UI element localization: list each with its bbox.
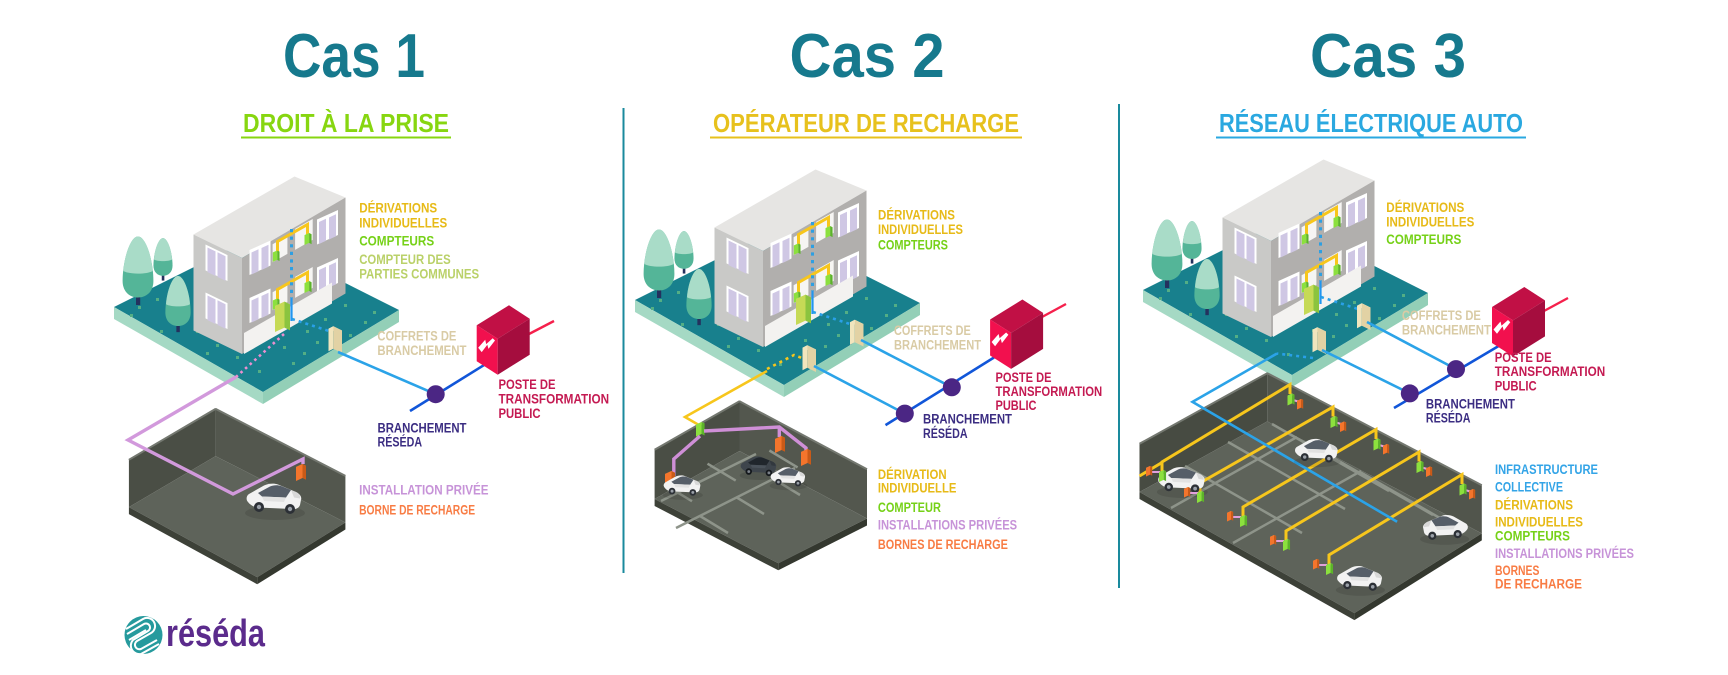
svg-text:BRANCHEMENT: BRANCHEMENT <box>1402 322 1492 337</box>
svg-text:TRANSFORMATION: TRANSFORMATION <box>499 391 610 406</box>
svg-text:BRANCHEMENT: BRANCHEMENT <box>377 343 467 358</box>
svg-text:COMPTEURS: COMPTEURS <box>878 238 948 253</box>
svg-text:INDIVIDUELLES: INDIVIDUELLES <box>359 215 447 230</box>
svg-text:OPÉRATEUR DE RECHARGE: OPÉRATEUR DE RECHARGE <box>713 108 1019 138</box>
svg-text:PUBLIC: PUBLIC <box>996 398 1037 413</box>
svg-text:BORNES DE RECHARGE: BORNES DE RECHARGE <box>878 537 1008 552</box>
svg-text:BRANCHEMENT: BRANCHEMENT <box>378 420 468 435</box>
svg-text:COFFRETS DE: COFFRETS DE <box>377 328 456 343</box>
svg-text:COMPTEUR: COMPTEUR <box>878 500 941 515</box>
svg-text:INSTALLATIONS PRIVÉES: INSTALLATIONS PRIVÉES <box>878 518 1017 533</box>
svg-text:Cas 3: Cas 3 <box>1310 22 1466 91</box>
svg-text:COFFRETS DE: COFFRETS DE <box>894 323 971 338</box>
svg-text:DÉRIVATIONS: DÉRIVATIONS <box>359 201 437 216</box>
svg-text:BRANCHEMENT: BRANCHEMENT <box>1426 396 1516 411</box>
svg-text:PUBLIC: PUBLIC <box>499 406 541 421</box>
svg-text:INDIVIDUELLES: INDIVIDUELLES <box>878 222 963 237</box>
svg-text:COLLECTIVE: COLLECTIVE <box>1495 479 1563 494</box>
svg-text:INDIVIDUELLES: INDIVIDUELLES <box>1495 515 1583 530</box>
svg-text:TRANSFORMATION: TRANSFORMATION <box>1495 364 1606 379</box>
svg-text:COMPTEUR DES: COMPTEUR DES <box>359 252 451 267</box>
svg-text:DE RECHARGE: DE RECHARGE <box>1495 577 1582 592</box>
svg-text:COFFRETS DE: COFFRETS DE <box>1402 308 1481 323</box>
svg-text:INDIVIDUELLE: INDIVIDUELLE <box>878 480 957 495</box>
svg-text:POSTE DE: POSTE DE <box>996 370 1052 385</box>
svg-text:INFRASTRUCTURE: INFRASTRUCTURE <box>1495 462 1598 477</box>
svg-text:COMPTEURS: COMPTEURS <box>1495 529 1570 544</box>
svg-text:INDIVIDUELLES: INDIVIDUELLES <box>1386 215 1474 230</box>
svg-text:réséda: réséda <box>166 613 266 655</box>
svg-text:POSTE DE: POSTE DE <box>1495 350 1552 365</box>
svg-text:RÉSEAU ÉLECTRIQUE AUTO: RÉSEAU ÉLECTRIQUE AUTO <box>1219 108 1523 138</box>
svg-text:DÉRIVATIONS: DÉRIVATIONS <box>878 208 955 223</box>
svg-text:COMPTEURS: COMPTEURS <box>1386 232 1461 247</box>
svg-text:POSTE DE: POSTE DE <box>499 377 556 392</box>
svg-text:PARTIES COMMUNES: PARTIES COMMUNES <box>359 267 479 282</box>
svg-text:DÉRIVATIONS: DÉRIVATIONS <box>1386 200 1464 215</box>
svg-text:INSTALLATION PRIVÉE: INSTALLATION PRIVÉE <box>359 482 488 497</box>
svg-text:RÉSÉDA: RÉSÉDA <box>1426 411 1471 426</box>
svg-text:DÉRIVATIONS: DÉRIVATIONS <box>1495 497 1573 512</box>
svg-text:RÉSÉDA: RÉSÉDA <box>923 426 968 441</box>
svg-text:COMPTEURS: COMPTEURS <box>359 233 434 248</box>
svg-text:INSTALLATIONS PRIVÉES: INSTALLATIONS PRIVÉES <box>1495 546 1634 561</box>
svg-text:Cas 2: Cas 2 <box>790 22 945 91</box>
svg-text:Cas 1: Cas 1 <box>283 22 425 91</box>
svg-text:BORNE DE RECHARGE: BORNE DE RECHARGE <box>359 503 475 518</box>
svg-text:BRANCHEMENT: BRANCHEMENT <box>894 337 982 352</box>
svg-text:PUBLIC: PUBLIC <box>1495 378 1537 393</box>
svg-text:BORNES: BORNES <box>1495 563 1539 578</box>
svg-text:DROIT À LA PRISE: DROIT À LA PRISE <box>243 108 449 138</box>
svg-text:RÉSÉDA: RÉSÉDA <box>378 435 423 450</box>
svg-text:BRANCHEMENT: BRANCHEMENT <box>923 412 1013 427</box>
svg-text:TRANSFORMATION: TRANSFORMATION <box>996 384 1103 399</box>
